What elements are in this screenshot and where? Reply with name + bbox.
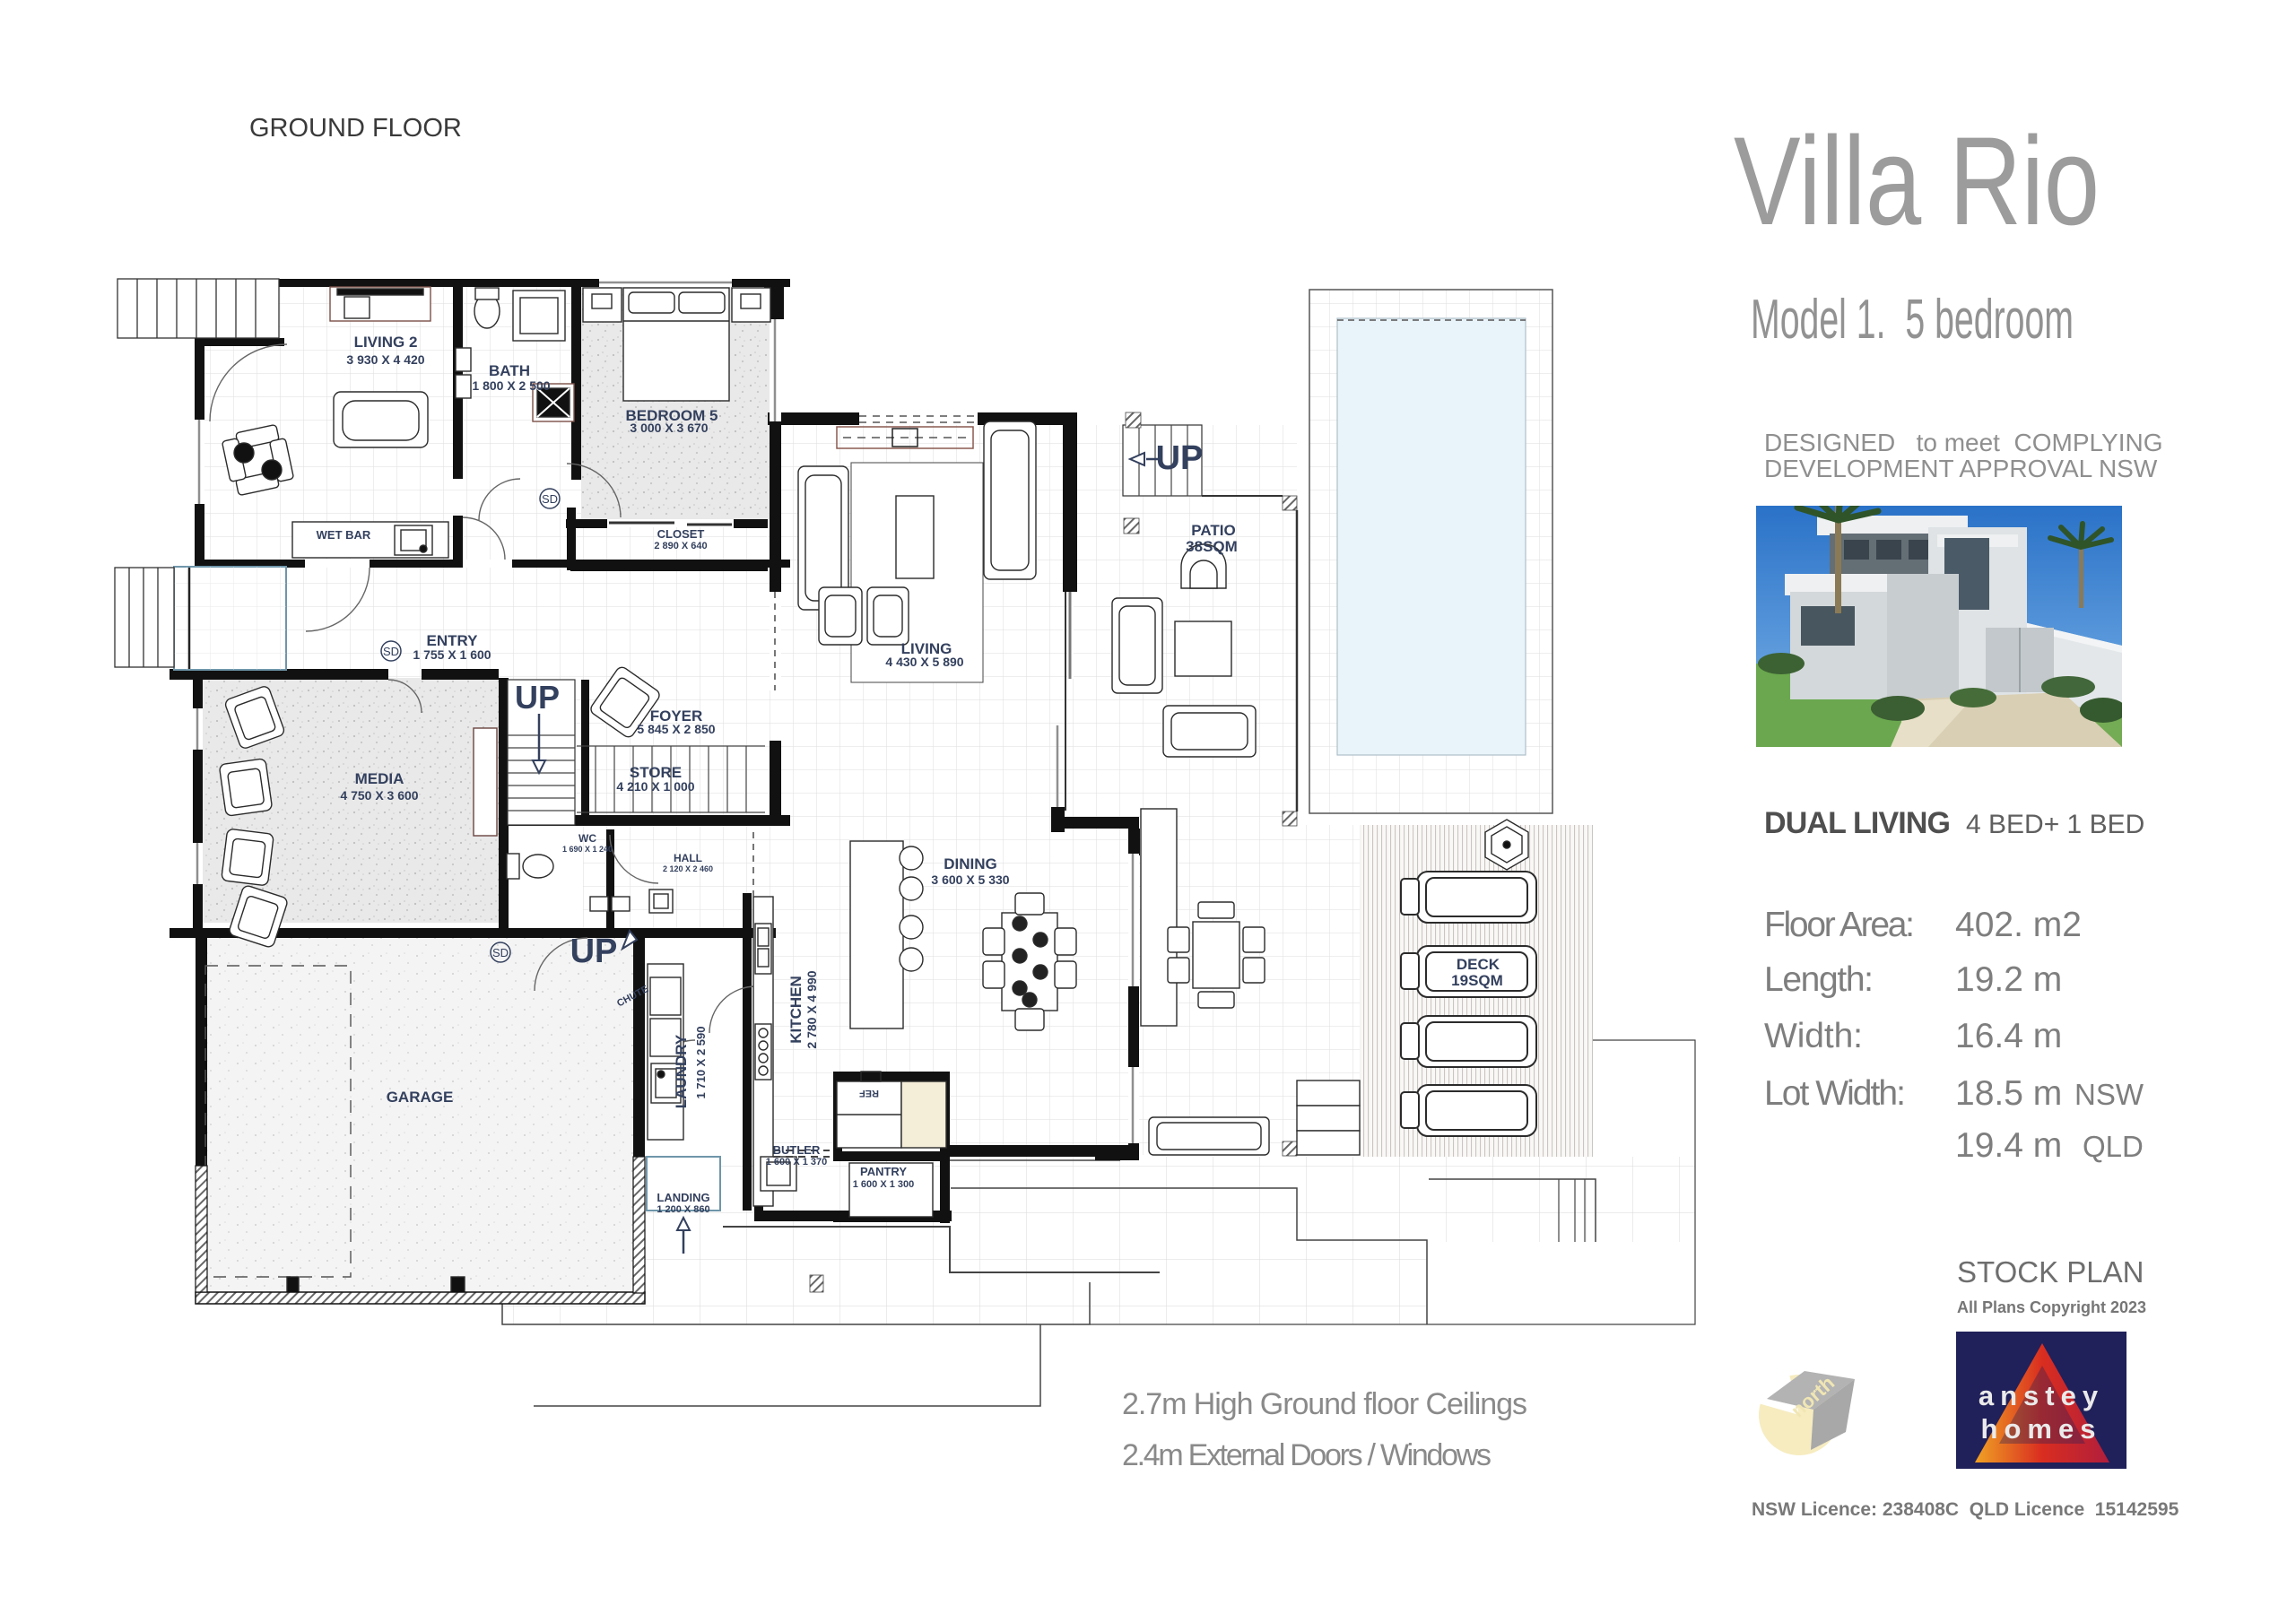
svg-text:Floor Area:: Floor Area: [1764, 906, 1915, 944]
svg-text:1 600 X 1 300: 1 600 X 1 300 [853, 1179, 915, 1190]
svg-text:Lot Width:: Lot Width: [1764, 1074, 1906, 1113]
svg-text:UP: UP [1156, 439, 1204, 477]
svg-text:CLOSET: CLOSET [657, 527, 705, 541]
svg-text:4 210 X 1 000: 4 210 X 1 000 [616, 779, 694, 794]
svg-text:DINING: DINING [944, 855, 997, 872]
svg-text:4 430 X 5 890: 4 430 X 5 890 [885, 655, 963, 669]
svg-text:DEVELOPMENT APPROVAL NSW: DEVELOPMENT APPROVAL NSW [1764, 455, 2158, 482]
svg-text:SD: SD [492, 946, 509, 959]
svg-text:UP: UP [570, 933, 618, 970]
svg-text:BATH: BATH [489, 362, 530, 379]
svg-text:anstey: anstey [1979, 1380, 2104, 1411]
svg-text:homes: homes [1981, 1413, 2102, 1445]
svg-text:1 200 X 860: 1 200 X 860 [657, 1204, 709, 1215]
svg-text:NSW Licence: 238408C QLD Lice: NSW Licence: 238408C QLD Licence 1514259… [1752, 1499, 2179, 1520]
svg-text:1 690 X 1 240: 1 690 X 1 240 [562, 845, 613, 854]
svg-text:STOCK PLAN: STOCK PLAN [1957, 1255, 2144, 1289]
svg-text:18.5 m: 18.5 m [1955, 1074, 2062, 1113]
svg-text:2 120 X 2 460: 2 120 X 2 460 [663, 864, 713, 873]
svg-text:19.2 m: 19.2 m [1955, 960, 2062, 999]
svg-text:Length:: Length: [1764, 960, 1874, 999]
svg-text:2 890 X 640: 2 890 X 640 [654, 541, 707, 551]
svg-text:PATIO: PATIO [1191, 522, 1235, 539]
svg-text:1 755 X 1 600: 1 755 X 1 600 [413, 647, 491, 662]
svg-text:2 780 X 4 990: 2 780 X 4 990 [804, 970, 819, 1048]
svg-text:HALL: HALL [674, 852, 702, 864]
svg-text:SD: SD [383, 645, 399, 658]
svg-text:BUTLER: BUTLER [773, 1143, 821, 1157]
svg-text:WC: WC [578, 832, 596, 845]
svg-text:NSW: NSW [2074, 1078, 2144, 1111]
svg-text:SD: SD [542, 492, 558, 506]
svg-text:5 845 X 2 850: 5 845 X 2 850 [637, 722, 715, 736]
svg-text:16.4 m: 16.4 m [1955, 1017, 2062, 1055]
svg-text:All Plans Copyright 2023: All Plans Copyright 2023 [1957, 1298, 2146, 1316]
svg-text:3 930 X 4 420: 3 930 X 4 420 [346, 352, 424, 367]
svg-text:MEDIA: MEDIA [355, 770, 404, 787]
svg-text:REF: REF [859, 1088, 879, 1098]
svg-text:DESIGNED to meet COMPLYING: DESIGNED to meet COMPLYING [1764, 429, 2162, 456]
svg-text:DUAL LIVING: DUAL LIVING [1764, 806, 1951, 840]
svg-text:Model 1. 5 bedroom: Model 1. 5 bedroom [1751, 289, 2074, 351]
svg-text:LIVING 2: LIVING 2 [354, 334, 418, 351]
svg-text:3 600 X 5 330: 3 600 X 5 330 [931, 872, 1009, 887]
svg-text:1 800 X 2 500: 1 800 X 2 500 [472, 378, 550, 393]
svg-text:2.7m High Ground floor Ceiling: 2.7m High Ground floor Ceilings [1122, 1387, 1527, 1421]
svg-text:UP: UP [515, 679, 560, 716]
svg-text:38SQM: 38SQM [1186, 538, 1238, 555]
svg-text:LAUNDRY: LAUNDRY [673, 1034, 690, 1108]
svg-text:KITCHEN: KITCHEN [787, 976, 804, 1044]
svg-text:QLD: QLD [2083, 1130, 2144, 1163]
svg-text:WET BAR: WET BAR [317, 528, 371, 542]
svg-text:DECK: DECK [1457, 956, 1500, 973]
svg-text:4 BED+ 1 BED: 4 BED+ 1 BED [1966, 810, 2144, 839]
svg-text:GROUND FLOOR: GROUND FLOOR [249, 114, 462, 143]
svg-text:Villa Rio: Villa Rio [1734, 110, 2100, 251]
svg-text:2.4m External Doors / Windows: 2.4m External Doors / Windows [1122, 1438, 1492, 1472]
svg-text:GARAGE: GARAGE [387, 1089, 454, 1106]
svg-text:Width:: Width: [1764, 1017, 1863, 1055]
svg-text:402. m2: 402. m2 [1955, 906, 2082, 944]
svg-text:1 710 X 2 590: 1 710 X 2 590 [694, 1027, 708, 1099]
svg-text:19SQM: 19SQM [1451, 972, 1503, 989]
svg-text:PANTRY: PANTRY [860, 1165, 907, 1178]
svg-text:4 750 X 3 600: 4 750 X 3 600 [340, 788, 418, 803]
svg-text:19.4 m: 19.4 m [1955, 1126, 2062, 1165]
svg-text:LANDING: LANDING [657, 1191, 709, 1204]
svg-text:1 600 X 1 370: 1 600 X 1 370 [766, 1157, 828, 1167]
svg-text:3 000 X 3 670: 3 000 X 3 670 [630, 421, 708, 435]
